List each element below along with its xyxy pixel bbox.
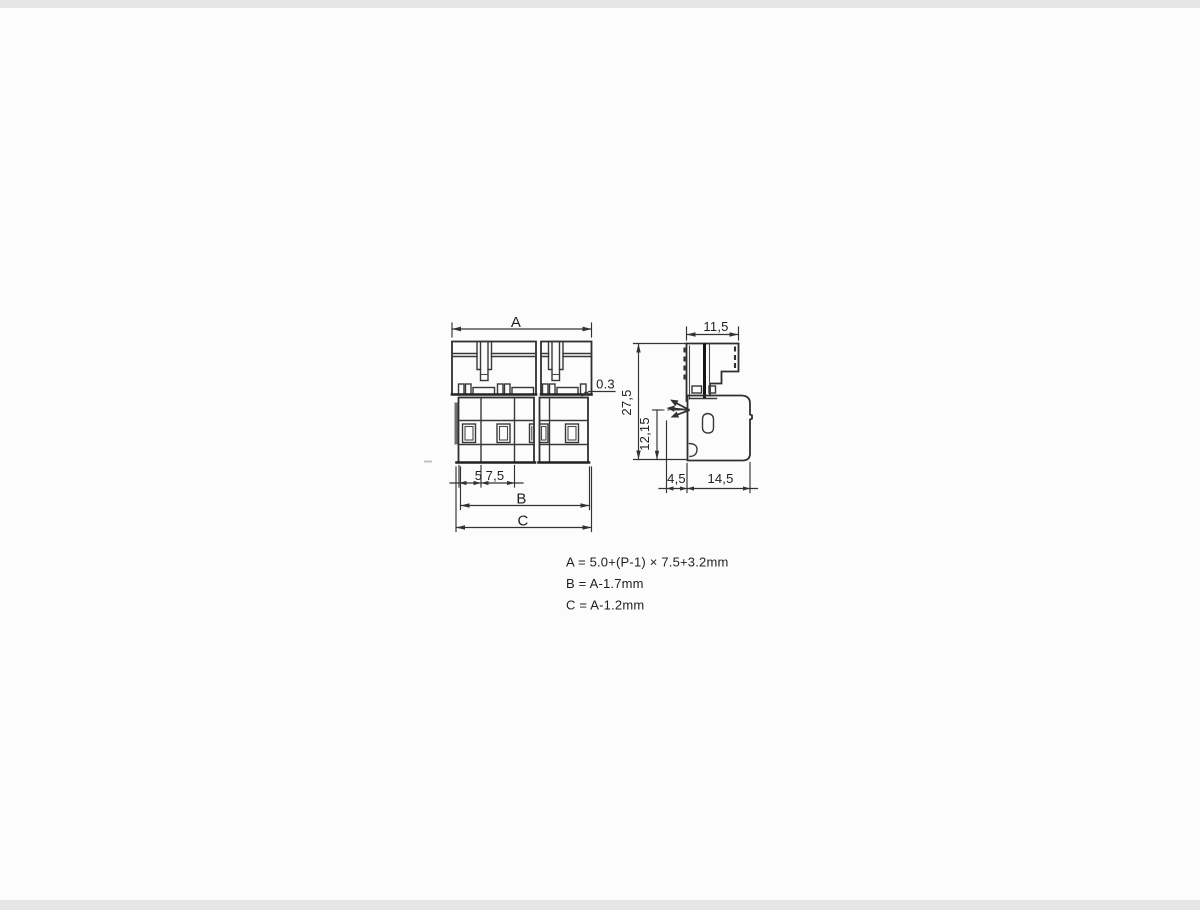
scan-edge-top (0, 0, 1200, 8)
dim-label-A: A (511, 314, 521, 331)
formula-line-2: B = A-1.7mm (566, 576, 644, 591)
dim-label-4-5: 4,5 (667, 471, 686, 486)
dim-label-12-15: 12,15 (637, 417, 652, 451)
front-lower-body-left (455, 398, 536, 463)
dim-label-C: C (517, 513, 528, 530)
formula-block: A = 5.0+(P-1) × 7.5+3.2mm B = A-1.7mm C … (566, 555, 729, 613)
front-lower-body-right (539, 398, 590, 463)
drawing-canvas: A 0.3 5 7,5 B (0, 0, 1200, 910)
dim-label-27-5: 27,5 (619, 389, 634, 415)
dim-label-first-pitch: 5 (475, 468, 482, 483)
side-header (685, 344, 739, 402)
dim-label-B: B (516, 491, 526, 508)
dimension-top-width: 11,5 (687, 319, 739, 340)
side-view: 11,5 27,5 12,15 4,5 14,5 (619, 319, 758, 493)
dimension-lower-height: 12,15 (637, 410, 662, 460)
dim-label-step: 0.3 (596, 377, 615, 392)
technical-drawing: A 0.3 5 7,5 B (0, 0, 1200, 910)
side-body (657, 396, 753, 461)
dim-label-pole-pitch: 7,5 (486, 468, 505, 483)
dimension-depths: 4,5 14,5 (659, 421, 758, 493)
front-view: A 0.3 5 7,5 B (450, 314, 615, 532)
scan-artifact (424, 461, 432, 463)
front-top-housing-left (452, 342, 536, 395)
scan-edge-bottom (0, 900, 1200, 910)
front-top-housing-right (541, 342, 592, 395)
formula-line-3: C = A-1.2mm (566, 598, 644, 613)
clamp-arrows (667, 400, 689, 418)
screw-hole (703, 414, 714, 434)
dimension-overall-width-A: A (452, 314, 592, 337)
contact-collar (692, 386, 702, 393)
dim-label-11-5: 11,5 (703, 319, 728, 334)
formula-line-1: A = 5.0+(P-1) × 7.5+3.2mm (566, 555, 729, 570)
dim-label-14-5: 14,5 (707, 471, 733, 486)
latch-foot (690, 444, 698, 457)
